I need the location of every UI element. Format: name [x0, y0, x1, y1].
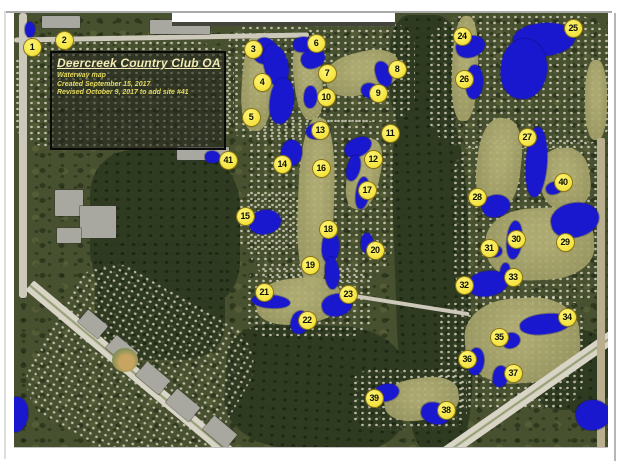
site-marker-9: 9	[370, 85, 387, 102]
site-marker-41: 41	[220, 152, 237, 169]
map-title: Deercreek Country Club OA	[57, 56, 219, 70]
site-marker-5: 5	[243, 109, 260, 126]
site-marker-8: 8	[389, 61, 406, 78]
terrain-road	[19, 13, 27, 298]
terrain-building	[57, 228, 81, 243]
site-marker-13: 13	[312, 122, 329, 139]
site-marker-15: 15	[237, 208, 254, 225]
map-bottom-edge	[14, 447, 608, 448]
site-marker-30: 30	[508, 231, 525, 248]
waterway-highlight	[25, 22, 35, 37]
site-marker-16: 16	[313, 160, 330, 177]
site-marker-24: 24	[454, 28, 471, 45]
site-marker-7: 7	[319, 65, 336, 82]
terrain-field	[112, 348, 138, 372]
map-legend-box: Deercreek Country Club OA Waterway map C…	[50, 51, 226, 150]
site-marker-27: 27	[519, 129, 536, 146]
terrain-building	[80, 206, 116, 238]
screenshot: { "legend": { "title": "Deercreek Countr…	[0, 0, 624, 461]
site-marker-18: 18	[320, 221, 337, 238]
page-border-right	[614, 13, 616, 461]
map-created-date: Created September 15, 2017	[57, 81, 219, 90]
site-marker-32: 32	[456, 277, 473, 294]
site-marker-1: 1	[24, 39, 41, 56]
aerial-waterway-map: Deercreek Country Club OA Waterway map C…	[14, 13, 608, 448]
site-marker-12: 12	[365, 151, 382, 168]
page-border-left	[4, 11, 6, 459]
site-marker-33: 33	[505, 269, 522, 286]
site-marker-38: 38	[438, 402, 455, 419]
site-marker-21: 21	[256, 284, 273, 301]
site-marker-31: 31	[481, 240, 498, 257]
map-top-notch	[172, 13, 395, 22]
terrain-building	[42, 16, 80, 28]
site-marker-34: 34	[559, 309, 576, 326]
site-marker-6: 6	[308, 35, 325, 52]
site-marker-3: 3	[245, 41, 262, 58]
map-top-notch-shadow	[172, 22, 395, 26]
site-marker-19: 19	[302, 257, 319, 274]
site-marker-36: 36	[459, 351, 476, 368]
terrain-fairway	[585, 60, 607, 140]
site-marker-29: 29	[557, 234, 574, 251]
site-marker-37: 37	[505, 365, 522, 382]
site-marker-20: 20	[367, 242, 384, 259]
map-subtitle-waterway: Waterway map	[57, 72, 219, 81]
site-marker-40: 40	[555, 174, 572, 191]
page-border-top	[5, 11, 612, 13]
site-marker-4: 4	[254, 74, 271, 91]
site-marker-2: 2	[56, 32, 73, 49]
site-marker-14: 14	[274, 156, 291, 173]
site-marker-25: 25	[565, 20, 582, 37]
site-marker-28: 28	[469, 189, 486, 206]
site-marker-10: 10	[318, 89, 335, 106]
site-marker-22: 22	[299, 312, 316, 329]
site-marker-39: 39	[366, 390, 383, 407]
site-marker-26: 26	[456, 71, 473, 88]
site-marker-17: 17	[359, 182, 376, 199]
waterway-highlight	[205, 151, 220, 163]
site-marker-23: 23	[340, 286, 357, 303]
site-marker-35: 35	[491, 329, 508, 346]
waterway-highlight	[14, 396, 30, 434]
terrain-building	[55, 190, 83, 216]
map-revised-date: Revised October 9, 2017 to add site #41	[57, 89, 219, 98]
site-marker-11: 11	[382, 125, 399, 142]
